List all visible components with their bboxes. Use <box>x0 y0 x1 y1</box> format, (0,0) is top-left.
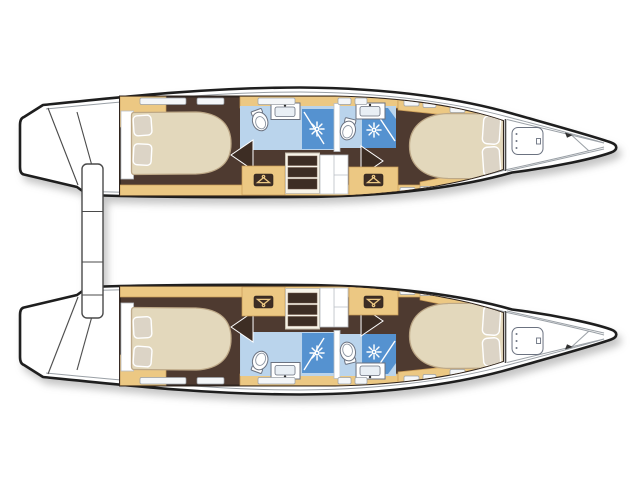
catamaran <box>20 88 616 395</box>
starboard-fwd-shower-spray-icon <box>367 345 381 359</box>
starboard-companionway-steps <box>286 289 320 330</box>
starboard-aft-shower-spray-icon <box>310 346 324 360</box>
port-fwd-wardrobe-hanger-icon <box>364 174 383 186</box>
window-slot <box>197 98 224 105</box>
port-companionway-steps <box>286 153 320 194</box>
port-aft-shower-spray-icon <box>310 122 324 136</box>
starboard-fwd-wardrobe-hanger-icon <box>364 296 383 308</box>
window-slot <box>197 378 224 385</box>
port-aft-head-sink-basin <box>275 107 295 117</box>
starboard-aft-bed-pillow-1 <box>133 346 152 367</box>
starboard-aft-bed-pillow-2 <box>133 317 152 339</box>
window-slot <box>140 98 186 105</box>
port-aft-bed-pillow-2 <box>133 144 152 166</box>
starboard-hull <box>20 285 616 395</box>
port-fwd-head-sink-basin <box>360 107 380 117</box>
window-slot <box>355 378 367 385</box>
starboard-fwd-bed-pillow-1 <box>482 337 501 366</box>
starboard-fwd-head-sink-basin <box>360 366 380 376</box>
window-slot <box>258 378 295 385</box>
port-fwd-shower-spray-icon <box>367 123 381 137</box>
port-heads-divider <box>334 104 340 152</box>
starboard-fwd-sink-faucet <box>369 376 371 378</box>
window-slot <box>355 98 367 105</box>
port-hull <box>20 88 616 198</box>
starboard-galley-counter <box>320 288 348 327</box>
stern-platform <box>82 164 103 318</box>
port-aft-wardrobe-hanger-icon <box>254 174 273 186</box>
window-slot <box>258 98 295 105</box>
port-fwd-sink-faucet <box>369 104 371 106</box>
window-slot <box>338 378 351 385</box>
starboard-heads-divider <box>334 331 340 379</box>
port-aft-bed-pillow-1 <box>133 115 152 136</box>
port-galley-counter <box>320 155 348 194</box>
starboard-aft-wardrobe-hanger-icon <box>254 296 273 308</box>
window-slot <box>338 98 351 105</box>
port-fwd-bed-pillow-1 <box>482 115 501 144</box>
starboard-aft-head-sink-basin <box>275 366 295 376</box>
deck-plan: Catamaran lower-deck layout plan (top vi… <box>0 0 640 480</box>
window-slot <box>140 378 186 385</box>
